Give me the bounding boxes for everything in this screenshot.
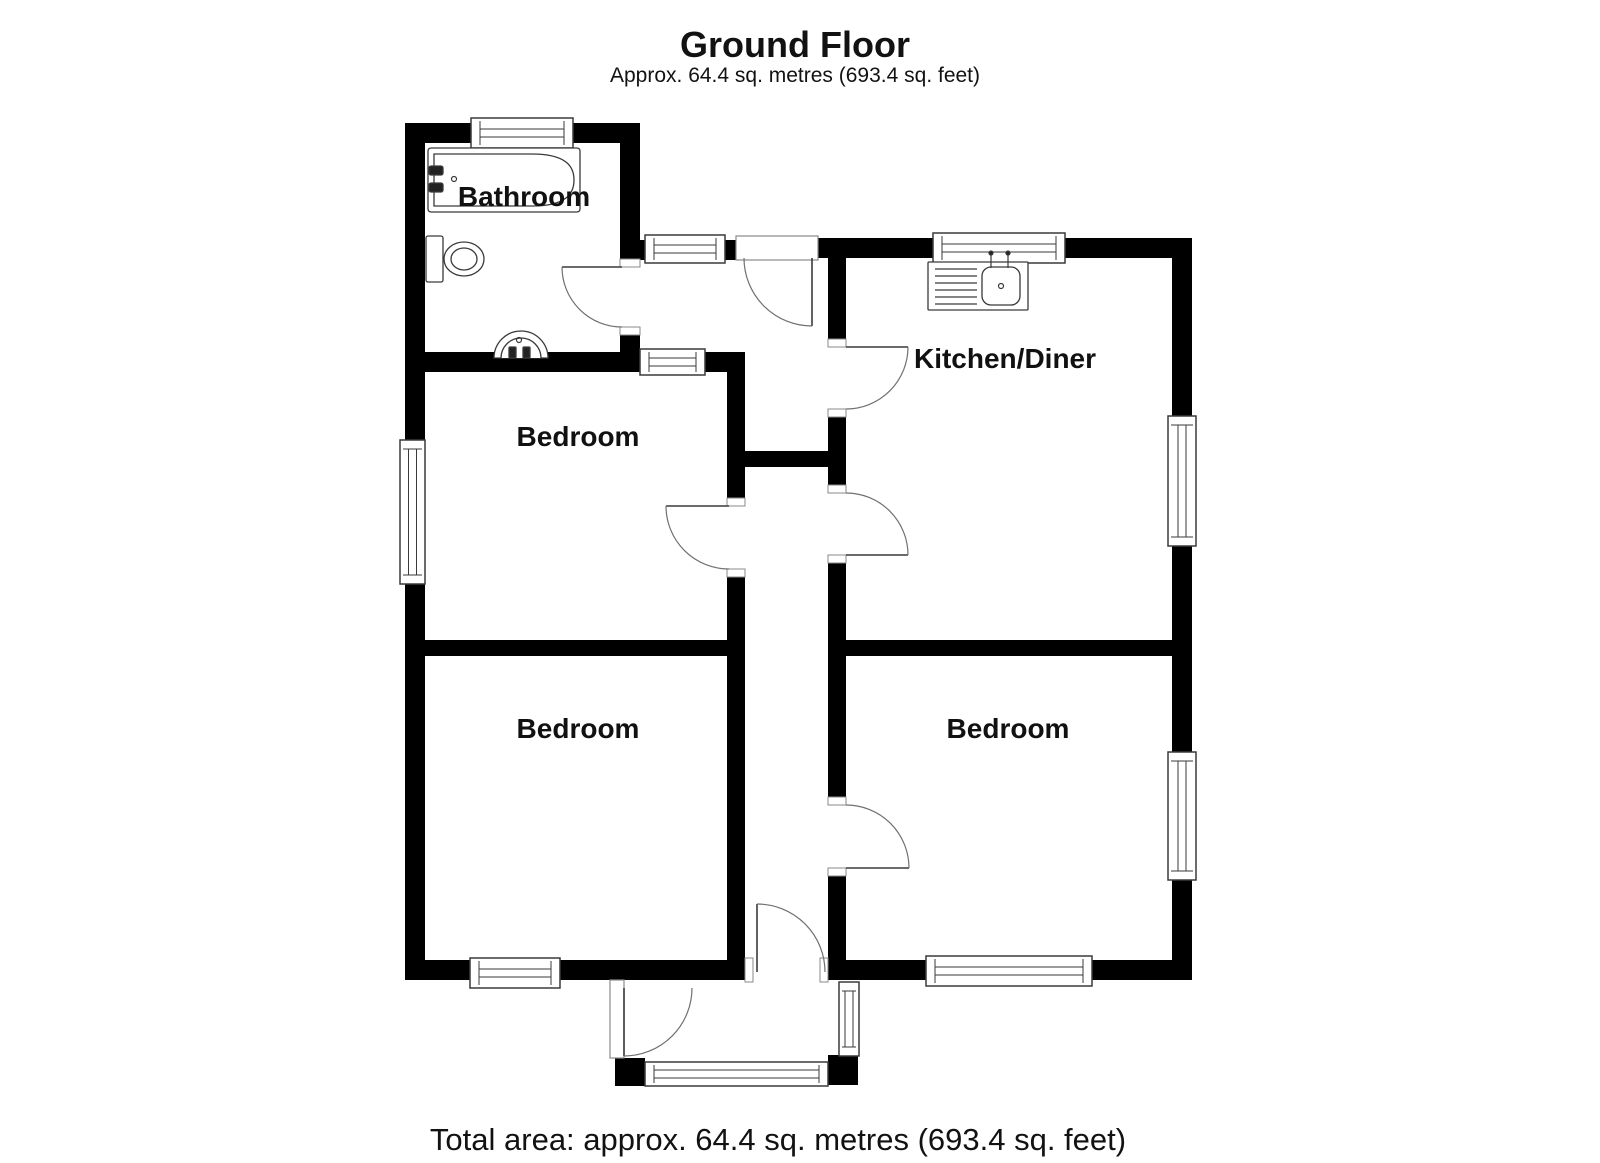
- kitchen-sink: [989, 251, 993, 255]
- rear-entrance-door-swing: [744, 258, 812, 326]
- kitchen-sink: [1006, 251, 1010, 255]
- bedroom-right-door-swing: [846, 805, 909, 868]
- bedroom-middle-door-swing: [666, 506, 729, 569]
- kitchen-top-window: [933, 233, 1065, 263]
- kitchen-right-window: [1168, 416, 1196, 546]
- floorplan: BathroomKitchen/DinerBedroomBedroomBedro…: [0, 0, 1600, 1163]
- porch-side-window: [839, 982, 859, 1056]
- room-label: Kitchen/Diner: [914, 343, 1096, 374]
- wall-cap: [727, 569, 745, 577]
- wall: [828, 409, 846, 493]
- wall-cap: [828, 868, 846, 876]
- wall: [745, 451, 828, 467]
- wall-cap: [620, 327, 640, 335]
- porch-entrance-door-swing: [624, 988, 692, 1056]
- wall-cap: [828, 797, 846, 805]
- bath: [429, 166, 443, 175]
- door-frame: [736, 236, 818, 260]
- wall: [727, 569, 745, 980]
- wall: [727, 352, 745, 506]
- bedroom-right-side-window: [1168, 752, 1196, 880]
- room-label: Bathroom: [458, 181, 590, 212]
- wall: [828, 555, 846, 805]
- wall: [828, 640, 1192, 656]
- bath: [429, 183, 443, 192]
- toilet: [451, 248, 477, 270]
- internal-hall-window: [640, 349, 705, 375]
- toilet: [426, 236, 443, 282]
- door-frame: [610, 980, 624, 1058]
- room-label: Bedroom: [517, 421, 640, 452]
- hand-basin: [523, 347, 530, 358]
- wall-cap: [620, 259, 640, 267]
- wall-cap: [828, 409, 846, 417]
- bathroom-door-swing: [562, 267, 622, 327]
- wall-cap: [828, 485, 846, 493]
- room-label: Bedroom: [947, 713, 1070, 744]
- hand-basin: [509, 347, 516, 358]
- bedroom-left-bottom-window: [470, 958, 560, 988]
- wall: [828, 1055, 858, 1085]
- wall: [620, 123, 640, 267]
- wall: [828, 258, 846, 347]
- wall: [828, 868, 846, 980]
- wall: [405, 640, 745, 656]
- bathroom-window: [471, 118, 573, 148]
- kitchen-door-upper-swing: [846, 347, 908, 409]
- hall-top-window: [645, 235, 725, 263]
- total-area: Total area: approx. 64.4 sq. metres (693…: [430, 1122, 1126, 1158]
- wall: [615, 1058, 645, 1086]
- wall-cap: [828, 339, 846, 347]
- kitchen-door-lower-swing: [846, 493, 908, 555]
- porch-bottom-window: [645, 1062, 828, 1086]
- floorplan-page: Ground Floor Approx. 64.4 sq. metres (69…: [0, 0, 1600, 1163]
- bedroom-left-window: [400, 440, 425, 584]
- bedroom-right-bottom-window: [926, 956, 1092, 986]
- wall-cap: [828, 555, 846, 563]
- wall-cap: [745, 958, 753, 982]
- kitchen-sink: [982, 267, 1020, 305]
- room-label: Bedroom: [517, 713, 640, 744]
- wall-cap: [727, 498, 745, 506]
